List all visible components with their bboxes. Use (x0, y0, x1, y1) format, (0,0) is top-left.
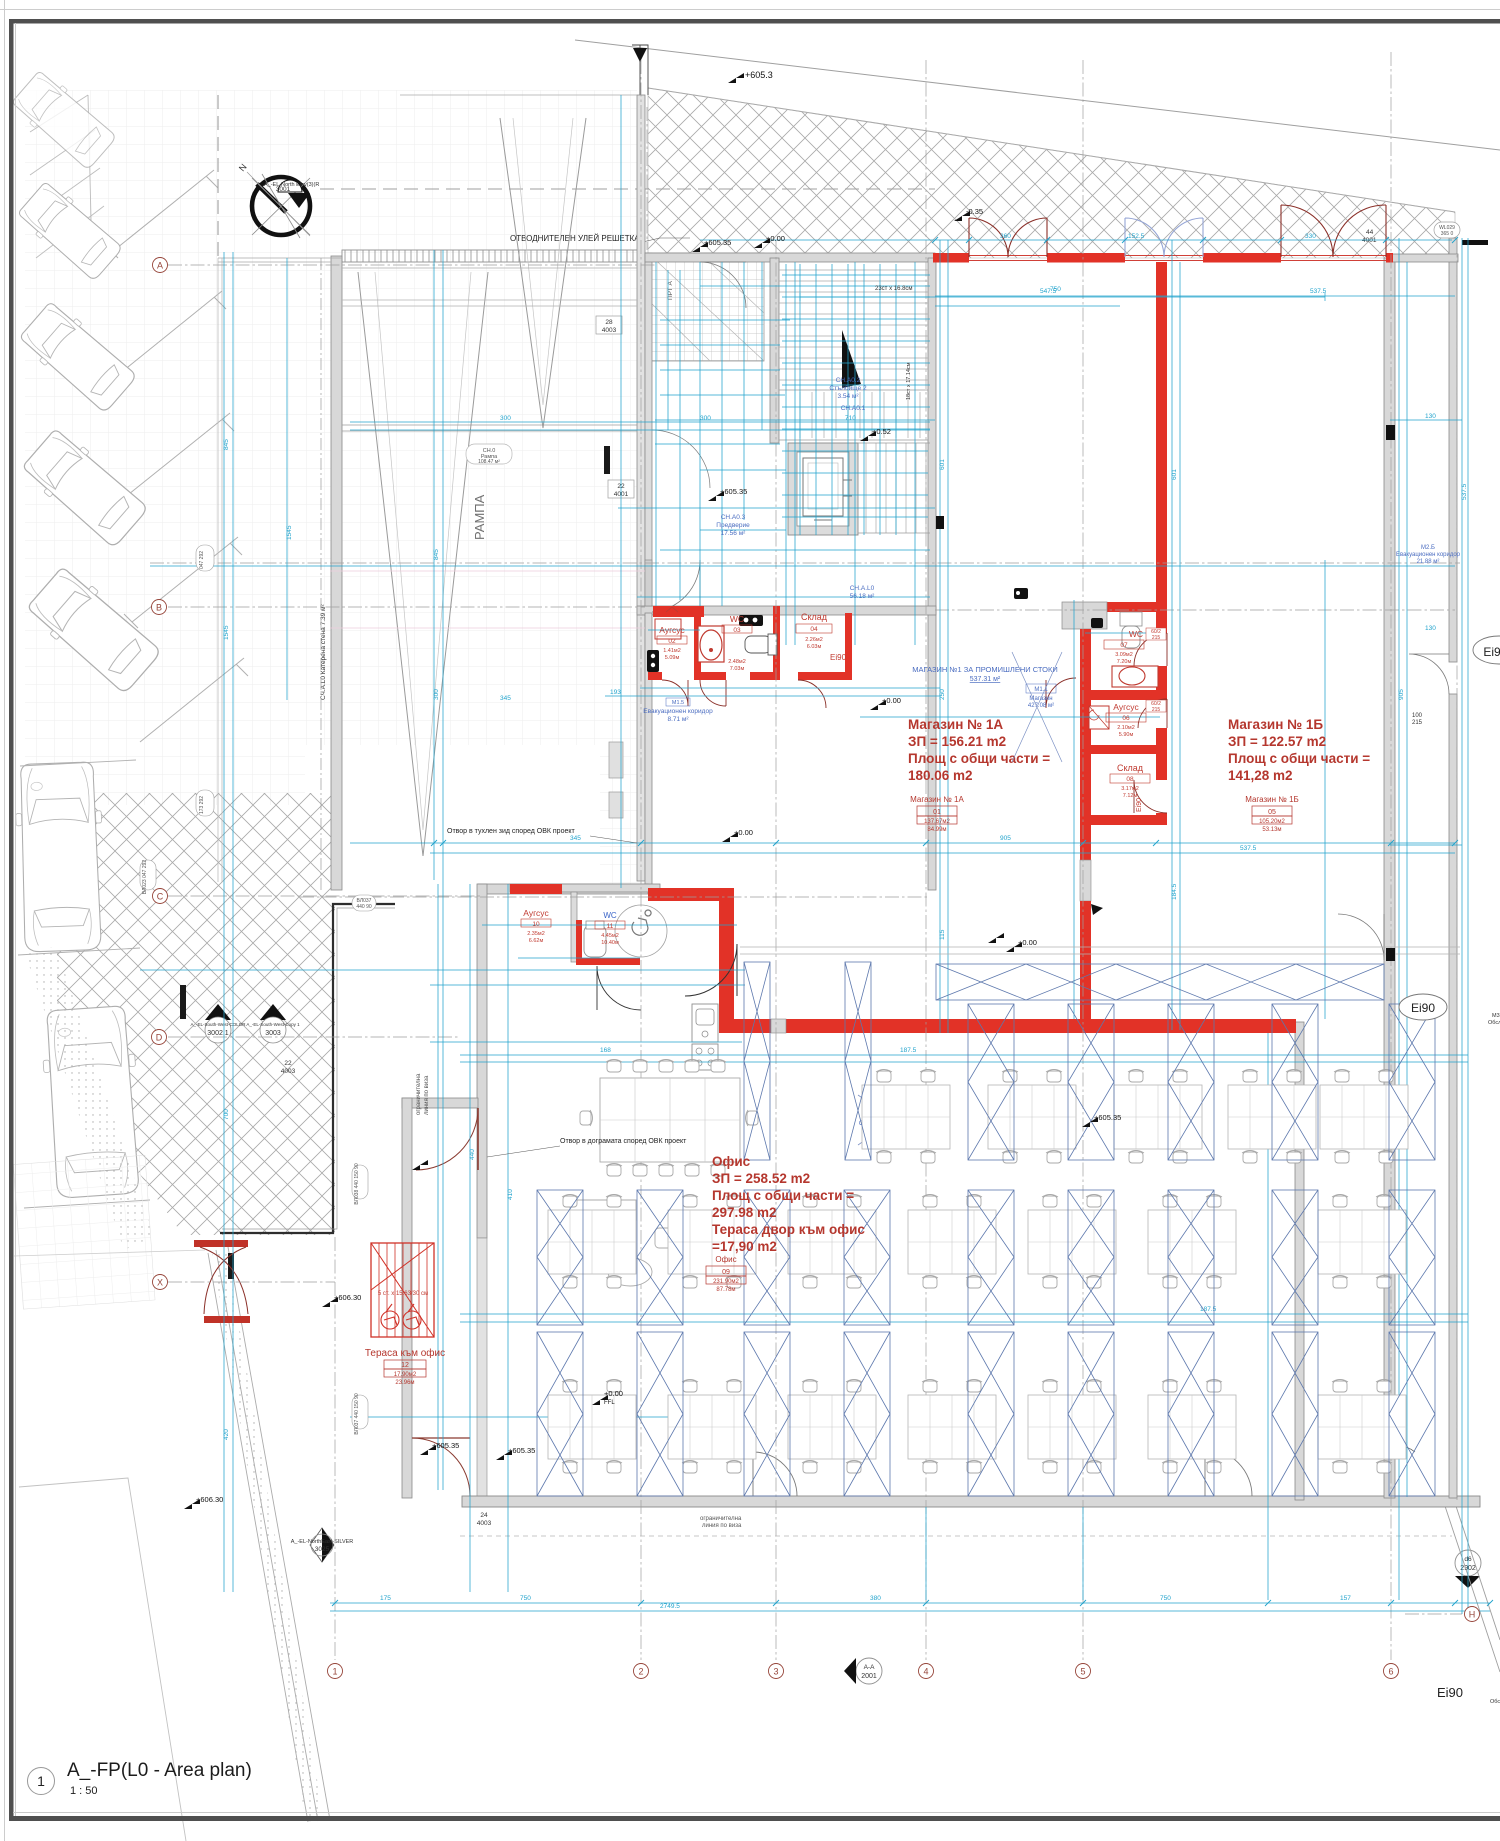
svg-text:18ст x 17.14см: 18ст x 17.14см (906, 362, 912, 400)
svg-text:Евакуационен коридор: Евакуационен коридор (643, 708, 713, 715)
svg-text:330: 330 (1305, 233, 1316, 240)
svg-text:440 90: 440 90 (356, 904, 372, 910)
svg-text:Предверие: Предверие (716, 522, 750, 529)
svg-text:17.56 м²: 17.56 м² (721, 530, 747, 537)
svg-text:5.09м: 5.09м (665, 655, 680, 661)
svg-text:+605.35: +605.35 (720, 487, 747, 496)
svg-text:845: 845 (433, 549, 440, 560)
svg-text:Магазин № 1А: Магазин № 1А (908, 717, 1003, 732)
svg-text:300: 300 (433, 689, 440, 700)
svg-text:44: 44 (1366, 229, 1374, 236)
svg-text:1 : 50: 1 : 50 (70, 1785, 98, 1797)
svg-text:МАГАЗИН №1 ЗА ПРОМИШЛЕНИ СТОКИ: МАГАЗИН №1 ЗА ПРОМИШЛЕНИ СТОКИ (912, 665, 1057, 674)
svg-text:215: 215 (1152, 635, 1161, 641)
svg-text:+605.35: +605.35 (508, 1446, 535, 1455)
svg-text:Магазин № 1Б: Магазин № 1Б (1228, 717, 1323, 732)
svg-text:07: 07 (1120, 642, 1128, 649)
svg-text:5 ст. х 15.63/30 см: 5 ст. х 15.63/30 см (378, 1291, 428, 1297)
svg-text:06: 06 (1122, 715, 1130, 722)
svg-text:Тераса към офис: Тераса към офис (365, 1347, 445, 1359)
svg-text:21.88 м²: 21.88 м² (1417, 559, 1440, 565)
svg-text:A: A (157, 261, 163, 271)
svg-text:02: 02 (668, 638, 676, 645)
svg-text:Площ с общи части =: Площ с общи части = (712, 1188, 854, 1203)
svg-text:СН.А0.1: СН.А0.1 (841, 405, 866, 412)
svg-text:750: 750 (1160, 1595, 1171, 1602)
svg-text:5.90м: 5.90м (1119, 732, 1134, 738)
svg-text:250: 250 (939, 689, 946, 700)
svg-text:A_-FP(L0 - Area plan): A_-FP(L0 - Area plan) (67, 1760, 252, 1781)
svg-text:700: 700 (223, 1109, 230, 1120)
svg-text:905: 905 (1000, 835, 1011, 842)
svg-text:Офис: Офис (712, 1154, 751, 1169)
svg-text:М2.Б: М2.Б (1421, 545, 1435, 551)
svg-text:427.08 м²: 427.08 м² (1028, 703, 1054, 709)
svg-text:380: 380 (870, 1595, 881, 1602)
svg-text:Аугсус: Аугсус (659, 625, 685, 635)
svg-text:-0.35: -0.35 (966, 207, 983, 216)
svg-text:360: 360 (1000, 233, 1011, 240)
svg-text:11: 11 (607, 923, 614, 930)
svg-text:137.67м2: 137.67м2 (924, 819, 950, 825)
svg-text:173 292: 173 292 (199, 796, 205, 814)
svg-text:Тераса двор към офис: Тераса двор към офис (712, 1222, 865, 1237)
svg-text:7.03м: 7.03м (730, 666, 745, 672)
svg-text:01: 01 (933, 809, 941, 816)
svg-text:537.31 м²: 537.31 м² (970, 676, 1001, 683)
svg-text:Отвор в дограмата според ОВК п: Отвор в дограмата според ОВК проект (560, 1138, 687, 1145)
svg-text:4.45м2: 4.45м2 (601, 933, 619, 939)
svg-text:Офис: Офис (715, 1255, 736, 1264)
svg-text:ВЛ023 047 292: ВЛ023 047 292 (142, 860, 148, 895)
svg-text:линия по виза: линия по виза (702, 1523, 742, 1529)
svg-text:601: 601 (1171, 469, 1178, 480)
svg-text:+0.00: +0.00 (882, 696, 901, 705)
svg-text:Ei90: Ei90 (1411, 1001, 1435, 1015)
svg-text:87.78м: 87.78м (716, 1287, 735, 1293)
svg-text:A-A: A-A (864, 1664, 876, 1671)
svg-text:710: 710 (845, 415, 856, 422)
svg-text:4001: 4001 (1362, 237, 1377, 244)
svg-text:Стълбище 2: Стълбище 2 (829, 384, 867, 392)
svg-text:4003: 4003 (477, 1520, 492, 1527)
svg-text:+0.52: +0.52 (872, 427, 891, 436)
svg-text:215: 215 (1412, 720, 1423, 726)
svg-text:Ei90: Ei90 (1437, 1685, 1463, 1700)
svg-text:СН.А0.3: СН.А0.3 (721, 514, 746, 521)
svg-text:Обслужващо: Обслужващо (1490, 1699, 1500, 1705)
svg-text:=17,90 m2: =17,90 m2 (712, 1239, 777, 1254)
svg-text:3.17м2: 3.17м2 (1121, 786, 1139, 792)
svg-text:345: 345 (500, 695, 511, 702)
svg-text:3001: 3001 (276, 186, 291, 193)
svg-text:6: 6 (1388, 1667, 1393, 1677)
svg-text:М3: М3 (1492, 1013, 1500, 1019)
svg-text:6.03м: 6.03м (807, 644, 822, 650)
svg-text:601: 601 (939, 459, 946, 470)
svg-text:A_-EL-North Elev(3)(R: A_-EL-North Elev(3)(R (264, 182, 319, 188)
svg-text:линия по виза: линия по виза (424, 1075, 430, 1115)
svg-text:24: 24 (480, 1512, 488, 1519)
svg-text:08: 08 (1126, 776, 1134, 783)
svg-text:17.90м2: 17.90м2 (394, 1372, 417, 1378)
svg-text:СН.А0.2: СН.А0.2 (836, 377, 861, 384)
svg-text:750: 750 (1050, 286, 1061, 293)
svg-text:184.5: 184.5 (1171, 883, 1178, 900)
svg-text:297.98 m2: 297.98 m2 (712, 1205, 777, 1220)
svg-text:300: 300 (500, 415, 511, 422)
svg-text:Ei90: Ei90 (830, 653, 847, 662)
svg-text:130: 130 (1425, 413, 1436, 420)
svg-text:B: B (156, 603, 162, 613)
svg-text:23.96м: 23.96м (395, 1380, 414, 1386)
svg-text:+0.00: +0.00 (766, 234, 785, 243)
svg-text:2.48м2: 2.48м2 (728, 659, 746, 665)
svg-text:345: 345 (570, 835, 581, 842)
svg-text:2: 2 (638, 1667, 643, 1677)
svg-text:53.13м: 53.13м (1262, 827, 1281, 833)
svg-text:440: 440 (469, 1149, 476, 1160)
svg-text:8.71 м²: 8.71 м² (667, 716, 689, 723)
svg-text:537.5: 537.5 (1461, 483, 1468, 500)
svg-text:3.54 м²: 3.54 м² (837, 393, 859, 400)
svg-text:ВЛ037 440 150 90: ВЛ037 440 150 90 (354, 1393, 360, 1435)
svg-text:C: C (157, 892, 164, 902)
svg-text:1.41м2: 1.41м2 (663, 648, 681, 654)
svg-text:168: 168 (600, 1047, 611, 1054)
svg-text:141,28 m2: 141,28 m2 (1228, 768, 1293, 783)
svg-text:X: X (157, 1278, 163, 1288)
svg-text:Магазин № 1Б: Магазин № 1Б (1245, 795, 1299, 804)
svg-text:108.47 м²: 108.47 м² (478, 459, 500, 465)
svg-text:2001: 2001 (861, 1673, 877, 1680)
svg-text:+606.30: +606.30 (196, 1495, 223, 1504)
svg-text:4: 4 (923, 1667, 928, 1677)
svg-text:+0.00: +0.00 (604, 1389, 623, 1398)
svg-text:Магазин № 1А: Магазин № 1А (910, 795, 964, 804)
svg-text:187.5: 187.5 (900, 1047, 917, 1054)
svg-text:ЗП = 156.21 m2: ЗП = 156.21 m2 (908, 734, 1006, 749)
svg-text:ограничителна: ограничителна (700, 1516, 742, 1522)
svg-text:СН.А.L0: СН.А.L0 (850, 585, 875, 592)
svg-text:750: 750 (520, 1595, 531, 1602)
svg-text:3003: 3003 (265, 1030, 281, 1037)
svg-text:WC: WC (1129, 629, 1143, 639)
svg-text:537.5: 537.5 (1240, 845, 1257, 852)
svg-text:420: 420 (223, 1429, 230, 1440)
svg-text:ЗП = 258.52 m2: ЗП = 258.52 m2 (712, 1171, 810, 1186)
svg-text:1545: 1545 (286, 525, 293, 540)
svg-text:05: 05 (1268, 809, 1276, 816)
svg-text:09: 09 (722, 1269, 730, 1276)
svg-text:03: 03 (733, 627, 741, 634)
svg-text:537.5: 537.5 (1310, 288, 1327, 295)
svg-text:2.35м2: 2.35м2 (527, 931, 545, 937)
svg-text:12: 12 (401, 1362, 409, 1369)
svg-text:+0.00: +0.00 (734, 828, 753, 837)
svg-text:М1.5: М1.5 (672, 700, 684, 706)
svg-text:231.90м2: 231.90м2 (713, 1279, 739, 1285)
svg-text:+605.35: +605.35 (432, 1441, 459, 1450)
svg-text:845: 845 (223, 439, 230, 450)
svg-text:4003: 4003 (281, 1068, 296, 1075)
svg-text:Обслужване: Обслужване (1488, 1020, 1500, 1026)
svg-text:4003: 4003 (602, 327, 617, 334)
svg-text:ВЛ038 440 150 90: ВЛ038 440 150 90 (354, 1163, 360, 1205)
svg-text:84.99м: 84.99м (927, 827, 946, 833)
svg-text:130: 130 (1425, 625, 1436, 632)
svg-text:3: 3 (773, 1667, 778, 1677)
svg-text:РАМПА: РАМПА (472, 494, 487, 540)
svg-text:1545: 1545 (223, 625, 230, 640)
svg-text:+606.30: +606.30 (334, 1293, 361, 1302)
svg-text:5: 5 (1080, 1667, 1085, 1677)
svg-text:WC: WC (730, 614, 744, 624)
svg-text:28: 28 (605, 319, 613, 326)
svg-text:Склад: Склад (1117, 763, 1144, 773)
svg-text:+605.35: +605.35 (1094, 1113, 1121, 1122)
svg-text:215: 215 (1152, 707, 1161, 713)
svg-text:ЗП = 122.57 m2: ЗП = 122.57 m2 (1228, 734, 1326, 749)
svg-text:7.20м: 7.20м (1117, 659, 1132, 665)
svg-text:Площ с общи части =: Площ с общи части = (1228, 751, 1370, 766)
svg-text:175: 175 (380, 1595, 391, 1602)
svg-text:23ст x 16.8см: 23ст x 16.8см (875, 286, 913, 292)
svg-text:+0.00: +0.00 (1018, 938, 1037, 947)
svg-text:115: 115 (939, 929, 946, 940)
svg-text:410: 410 (507, 1189, 514, 1200)
svg-text:1: 1 (37, 1773, 45, 1789)
svg-text:10: 10 (532, 921, 540, 928)
svg-text:6.62м: 6.62м (529, 938, 544, 944)
svg-text:105.20м2: 105.20м2 (1259, 819, 1285, 825)
svg-text:Площ с общи части =: Площ с общи части = (908, 751, 1050, 766)
svg-text:3.09м2: 3.09м2 (1115, 652, 1133, 658)
svg-text:Отвор в тухлен зид според ОВК: Отвор в тухлен зид според ОВК проект (447, 828, 575, 835)
svg-text:56.18 м²: 56.18 м² (850, 593, 876, 600)
svg-text:22: 22 (284, 1060, 292, 1067)
svg-text:2.26м2: 2.26м2 (805, 637, 823, 643)
svg-text:D: D (156, 1033, 163, 1043)
svg-text:152.5: 152.5 (1128, 233, 1145, 240)
svg-text:2749.5: 2749.5 (660, 1603, 680, 1610)
svg-text:905: 905 (1398, 689, 1405, 700)
svg-text:2.10м2: 2.10м2 (1117, 725, 1135, 731)
svg-text:3025: 3025 (315, 1546, 330, 1553)
svg-text:A_-EL-NorthEast-SILVER: A_-EL-NorthEast-SILVER (291, 1539, 354, 1545)
svg-text:193: 193 (610, 689, 621, 696)
svg-text:FFL: FFL (604, 1400, 615, 1406)
svg-text:+605.3: +605.3 (745, 70, 773, 80)
svg-text:A_-EL-South-West-Copy 1: A_-EL-South-West-Copy 1 (246, 1022, 300, 1027)
svg-text:180.06 m2: 180.06 m2 (908, 768, 973, 783)
svg-text:10.40м: 10.40м (601, 940, 619, 946)
svg-text:ограничителна: ограничителна (416, 1073, 422, 1115)
svg-text:157: 157 (1340, 1595, 1351, 1602)
svg-text:Аугсус: Аугсус (1113, 702, 1139, 712)
svg-text:047 292: 047 292 (199, 551, 205, 569)
svg-text:H: H (1469, 1610, 1476, 1620)
svg-text:A_-EL-South-West-COLOR: A_-EL-South-West-COLOR (191, 1022, 247, 1027)
svg-text:Евакуационен коридор: Евакуационен коридор (1396, 552, 1461, 558)
svg-text:04: 04 (810, 626, 818, 633)
svg-text:300: 300 (700, 415, 711, 422)
svg-text:Аугсус: Аугсус (523, 908, 549, 918)
svg-text:М1.1: М1.1 (1034, 687, 1048, 693)
svg-text:1: 1 (332, 1667, 337, 1677)
svg-text:Склад: Склад (801, 612, 828, 622)
svg-text:3002.1: 3002.1 (207, 1030, 229, 1037)
svg-text:+605.35: +605.35 (704, 238, 731, 247)
svg-text:100: 100 (1412, 713, 1423, 719)
svg-text:WC: WC (603, 911, 617, 920)
svg-text:Ei9: Ei9 (1483, 645, 1500, 659)
svg-text:365 0: 365 0 (1441, 231, 1454, 237)
svg-text:Ei90: Ei90 (1136, 798, 1143, 812)
